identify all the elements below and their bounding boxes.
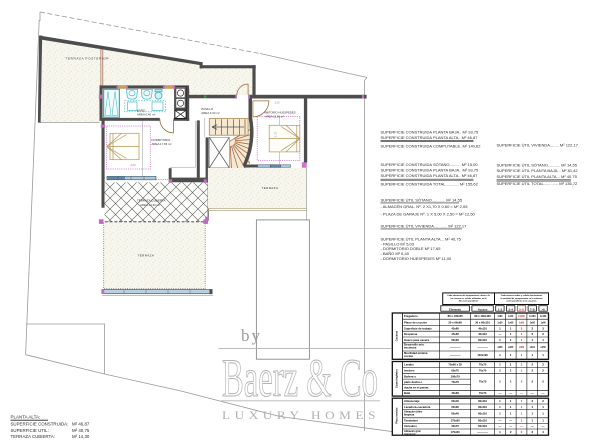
svg-text:3–4: 3–4 bbox=[508, 308, 513, 312]
svg-text:—: — bbox=[531, 424, 534, 428]
svg-text:60x110: 60x110 bbox=[478, 419, 487, 423]
svg-text:45x60: 45x60 bbox=[451, 326, 459, 330]
svg-text:————: ———— bbox=[450, 354, 461, 357]
svg-text:AREA 11,00 m²: AREA 11,00 m² bbox=[265, 115, 284, 119]
svg-text:110x190: 110x190 bbox=[477, 353, 488, 357]
svg-text:————: ———— bbox=[477, 346, 488, 349]
svg-text:LUXURY HOMES: LUXURY HOMES bbox=[222, 410, 380, 422]
svg-text:SUPERFICIE ÚTIL VIVIENDA......: SUPERFICIE ÚTIL VIVIENDA............ M² … bbox=[381, 223, 468, 228]
svg-text:- PLAZA DE GARAJE Nº. 1 X 5,0: - PLAZA DE GARAJE Nº. 1 X 5,00 X 2,50 = … bbox=[381, 211, 476, 216]
svg-text:SUPERFICIE ÚTIL TOTAL.........: SUPERFICIE ÚTIL TOTAL............. M² 13… bbox=[497, 181, 579, 186]
svg-text:SUPERFICIE CONSTRUIDA TOTAL...: SUPERFICIE CONSTRUIDA TOTAL............ … bbox=[381, 182, 479, 187]
svg-text:SUPERFICIE UTIL:: SUPERFICIE UTIL: bbox=[11, 428, 49, 433]
svg-text:170x60: 170x60 bbox=[451, 430, 460, 434]
svg-text:45x110: 45x110 bbox=[478, 326, 487, 330]
svg-text:1x100: 1x100 bbox=[529, 316, 536, 318]
svg-text:70x70: 70x70 bbox=[479, 380, 487, 384]
svg-text:SUPERFICIE ÚTIL SÓTANO........: SUPERFICIE ÚTIL SÓTANO........... M² 14,… bbox=[497, 163, 578, 168]
svg-text:SUPERFICIE CONSTRUIDA COMPUTAB: SUPERFICIE CONSTRUIDA COMPUTABLE..M² 140… bbox=[381, 144, 482, 149]
svg-text:by: by bbox=[241, 326, 262, 345]
svg-text:- ALMACÉN GRAL. Nº. 2 X1,70 X: - ALMACÉN GRAL. Nº. 2 X1,70 X 0,60 = M² … bbox=[381, 204, 469, 209]
svg-text:60x110: 60x110 bbox=[478, 424, 487, 428]
svg-text:—: — bbox=[520, 391, 523, 395]
svg-text:fila correspondiente: fila correspondiente bbox=[459, 300, 479, 303]
svg-text:30 x 60x110: 30 x 60x110 bbox=[475, 320, 490, 324]
svg-text:TERRAZA: TERRAZA bbox=[262, 186, 279, 190]
svg-text:SUPERFICIE CONSTRUIDA PLANTA B: SUPERFICIE CONSTRUIDA PLANTA BAJA.. M² 9… bbox=[381, 129, 480, 134]
svg-text:Inodoro: Inodoro bbox=[404, 369, 415, 373]
svg-text:Plano de cocción: Plano de cocción bbox=[404, 320, 427, 324]
svg-text:AREA 3,03 m²: AREA 3,03 m² bbox=[201, 111, 219, 115]
svg-text:≥320: ≥320 bbox=[508, 346, 514, 349]
svg-text:45x60: 45x60 bbox=[451, 391, 459, 395]
svg-text:SUPERFICIE ÚTIL SÓTANO........: SUPERFICIE ÚTIL SÓTANO............ M² 14… bbox=[381, 197, 463, 202]
svg-text:Despensa: Despensa bbox=[404, 332, 418, 336]
svg-text:—: — bbox=[520, 424, 523, 428]
svg-text:limpieza: limpieza bbox=[404, 412, 415, 416]
svg-text:AREA 17,65 m²: AREA 17,65 m² bbox=[152, 142, 172, 146]
svg-text:60x110: 60x110 bbox=[478, 338, 487, 342]
svg-text:PLANTA ALTA:: PLANTA ALTA: bbox=[11, 415, 41, 420]
svg-text:SUPERFICIE CONSTRUIDA PLANTA A: SUPERFICIE CONSTRUIDA PLANTA ALTA.. M² 4… bbox=[381, 135, 479, 140]
svg-text:Acceso: Acceso bbox=[478, 308, 488, 312]
svg-text:Baerz & Co: Baerz & Co bbox=[222, 348, 378, 408]
svg-text:Lavadora+secadora: Lavadora+secadora bbox=[404, 405, 431, 409]
svg-text:SUPERFICIE ÚTIL VIVIENDA......: SUPERFICIE ÚTIL VIVIENDA........ M² 122,… bbox=[497, 143, 579, 148]
svg-text:Elemento: Elemento bbox=[449, 308, 461, 312]
svg-text:1,75: 1,75 bbox=[274, 131, 278, 137]
svg-text:Cada número indica y señala di: Cada número indica y señala directamente bbox=[501, 294, 543, 297]
svg-text:1,90: 1,90 bbox=[196, 121, 200, 127]
svg-text:60x60: 60x60 bbox=[451, 338, 459, 342]
svg-text:—: — bbox=[509, 391, 512, 395]
svg-text:100x70: 100x70 bbox=[451, 375, 460, 379]
svg-text:60x60: 60x60 bbox=[451, 405, 459, 409]
svg-text:la cantidad de equipamiento en: la cantidad de equipamiento en la column… bbox=[501, 297, 544, 300]
svg-text:AREA 6,40 m²: AREA 6,40 m² bbox=[137, 112, 155, 116]
svg-text:SUPERFICIE CONSTRUIDA PLANTA A: SUPERFICIE CONSTRUIDA PLANTA ALTA.. M² 4… bbox=[381, 173, 479, 178]
svg-text:1x100: 1x100 bbox=[518, 316, 525, 318]
svg-text:—: — bbox=[542, 424, 545, 428]
svg-text:60x110: 60x110 bbox=[478, 399, 487, 403]
svg-text:M² 46,87: M² 46,87 bbox=[72, 422, 90, 427]
svg-text:—: — bbox=[509, 419, 512, 423]
svg-text:SUPERFICIE CONSTRUIDA SÓTANO..: SUPERFICIE CONSTRUIDA SÓTANO.......... M… bbox=[381, 162, 479, 167]
svg-text:≥410: ≥410 bbox=[530, 346, 536, 349]
svg-text:1x60: 1x60 bbox=[508, 316, 514, 318]
svg-text:Cocinas: Cocinas bbox=[395, 330, 399, 341]
svg-text:TERRAZA: TERRAZA bbox=[138, 253, 155, 257]
svg-text:SUPERFICIE ÚTIL PLANTA BAJA...: SUPERFICIE ÚTIL PLANTA BAJA... M² 81,42 bbox=[497, 168, 579, 173]
svg-text:5–6: 5–6 bbox=[519, 308, 524, 312]
svg-text:————: ———— bbox=[450, 346, 461, 349]
svg-text:TERRAZA CUBIERTA: TERRAZA CUBIERTA bbox=[137, 199, 166, 203]
svg-text:70x70: 70x70 bbox=[479, 391, 487, 395]
svg-text:encimera: encimera bbox=[404, 346, 417, 350]
svg-text:≥360: ≥360 bbox=[519, 346, 525, 349]
svg-text:1x100: 1x100 bbox=[540, 316, 547, 318]
svg-text:—: — bbox=[498, 391, 501, 395]
svg-text:80 x 100x100: 80 x 100x100 bbox=[474, 314, 491, 318]
svg-text:60x40: 60x40 bbox=[451, 399, 459, 403]
svg-text:correspondiente a los usuario: correspondiente a los usuarios bbox=[506, 300, 537, 303]
svg-text:Cada elemento del equipamiento: Cada elemento del equipamiento, dimen. d… bbox=[447, 294, 491, 297]
svg-text:Fregadero: Fregadero bbox=[404, 314, 418, 318]
svg-text:1x60: 1x60 bbox=[541, 322, 547, 324]
svg-text:1x60: 1x60 bbox=[519, 322, 525, 324]
svg-text:60x40: 60x40 bbox=[451, 412, 459, 416]
svg-text:—: — bbox=[498, 419, 501, 423]
svg-text:Hueco para nevera: Hueco para nevera bbox=[404, 338, 429, 342]
svg-text:60x110: 60x110 bbox=[478, 405, 487, 409]
svg-text:TERRAZA CUBIERTA:: TERRAZA CUBIERTA: bbox=[11, 434, 55, 439]
svg-text:M² 14,30: M² 14,30 bbox=[72, 434, 90, 439]
svg-text:≥240: ≥240 bbox=[497, 346, 503, 349]
svg-text:2,60: 2,60 bbox=[131, 163, 137, 167]
svg-text:————: ———— bbox=[477, 431, 488, 434]
svg-text:≥450: ≥450 bbox=[541, 346, 547, 349]
svg-text:30 x 60x60: 30 x 60x60 bbox=[448, 320, 462, 324]
svg-text:—: — bbox=[498, 424, 501, 428]
svg-text:- DORMITORIO HUESPEDES M² 11,: - DORMITORIO HUESPEDES M² 11,00 bbox=[381, 256, 453, 261]
svg-text:70x60 x 35: 70x60 x 35 bbox=[448, 363, 462, 367]
svg-text:Almacenaje: Almacenaje bbox=[404, 399, 420, 403]
svg-text:30x70: 30x70 bbox=[451, 424, 459, 428]
svg-text:ducha en el pavim.: ducha en el pavim. bbox=[404, 385, 429, 389]
svg-text:—: — bbox=[509, 424, 512, 428]
svg-text:SUPERFICIE CONSTRUIDA PLANTA B: SUPERFICIE CONSTRUIDA PLANTA BAJA.. M² 9… bbox=[381, 168, 480, 173]
svg-text:—: — bbox=[542, 391, 545, 395]
svg-text:1x60: 1x60 bbox=[508, 322, 514, 324]
svg-text:170x60: 170x60 bbox=[451, 419, 460, 423]
svg-text:—: — bbox=[498, 332, 501, 336]
svg-text:45x110: 45x110 bbox=[478, 332, 487, 336]
svg-text:plato ducha o: plato ducha o bbox=[404, 380, 422, 384]
svg-text:las normas se señala utilizado: las normas se señala utilizados en la bbox=[451, 297, 488, 300]
svg-text:>8: >8 bbox=[542, 308, 546, 312]
svg-text:70x70: 70x70 bbox=[479, 369, 487, 373]
svg-text:SUPERFICIE CONSTRUIDA:: SUPERFICIE CONSTRUIDA: bbox=[11, 422, 69, 427]
svg-text:80 x 100x60: 80 x 100x60 bbox=[448, 314, 463, 318]
svg-text:Tendedero: Tendedero bbox=[404, 419, 418, 423]
svg-text:M² 40,75: M² 40,75 bbox=[72, 428, 90, 433]
svg-text:1–2: 1–2 bbox=[498, 308, 503, 312]
svg-text:Cuarto higiénico: Cuarto higiénico bbox=[396, 369, 399, 388]
svg-text:Superficie de trabajo: Superficie de trabajo bbox=[404, 326, 432, 330]
svg-text:45x60: 45x60 bbox=[451, 332, 459, 336]
svg-text:Bañera o: Bañera o bbox=[404, 374, 416, 378]
svg-text:60x70: 60x70 bbox=[451, 369, 459, 373]
svg-text:1x60: 1x60 bbox=[497, 316, 503, 318]
svg-text:Pieza servicio: Pieza servicio bbox=[396, 407, 399, 423]
svg-text:Vertedero: Vertedero bbox=[404, 424, 417, 428]
svg-text:60x110: 60x110 bbox=[478, 412, 487, 416]
svg-text:SUPERFICIE ÚTIL PLANTA ALTA...: SUPERFICIE ÚTIL PLANTA ALTA... M² 40,75 bbox=[497, 174, 578, 179]
svg-text:7–8: 7–8 bbox=[530, 308, 535, 312]
svg-text:70x70: 70x70 bbox=[451, 380, 459, 384]
svg-text:2,20: 2,20 bbox=[275, 100, 281, 104]
svg-text:1x30: 1x30 bbox=[497, 322, 503, 324]
svg-text:AREA 14,30 m²: AREA 14,30 m² bbox=[140, 203, 160, 207]
svg-text:70x70: 70x70 bbox=[479, 363, 487, 367]
svg-text:—: — bbox=[531, 391, 534, 395]
svg-text:1x60: 1x60 bbox=[530, 322, 536, 324]
svg-text:Bidé: Bidé bbox=[404, 391, 411, 395]
svg-text:Lavabo: Lavabo bbox=[404, 363, 414, 367]
svg-text:cocina: cocina bbox=[404, 354, 413, 358]
